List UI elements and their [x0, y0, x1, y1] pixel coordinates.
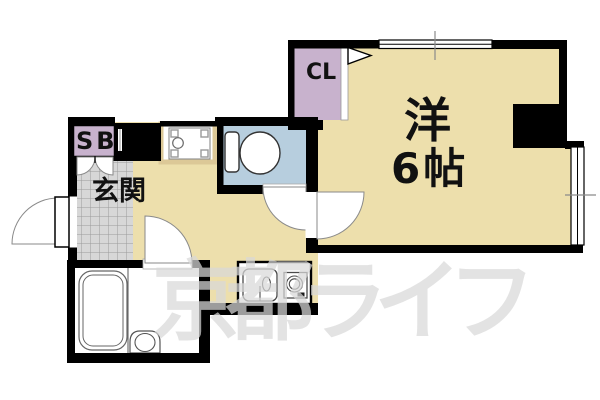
entrance-door-swing: [12, 198, 58, 244]
entrance-label: 玄関: [92, 174, 121, 209]
western-room-label: 洋: [404, 98, 451, 145]
kitchen-sink-icon: [243, 269, 277, 301]
closet-sliding-door: [341, 48, 348, 120]
shoe-box-label: SB: [76, 129, 118, 153]
floor-plan: 洋 6帖 CL SB 玄関 京都ライフ: [0, 0, 600, 400]
pillar-notch: [513, 104, 567, 148]
room-size-label: 6帖: [391, 148, 468, 190]
stove-icon: [284, 273, 307, 299]
western-room-floor-east: [560, 148, 572, 245]
floor-plan-drawing: [0, 0, 600, 400]
wash-basin-icon: [130, 331, 160, 353]
washing-machine-icon: [161, 124, 215, 162]
closet-label: CL: [306, 60, 330, 85]
kitchen-counter: [238, 262, 311, 304]
toilet-icon: [225, 132, 280, 174]
bathtub-icon: [79, 271, 127, 350]
entrance-door-leaf: [55, 197, 69, 247]
